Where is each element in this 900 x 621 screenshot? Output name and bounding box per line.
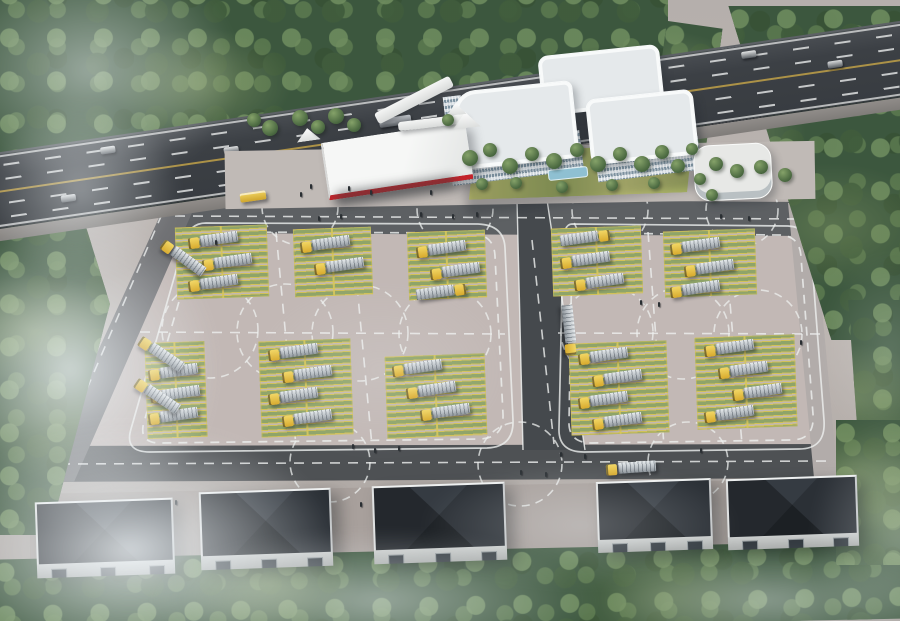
tree bbox=[510, 177, 522, 189]
truck-cab bbox=[684, 265, 696, 277]
tree bbox=[556, 181, 568, 193]
tree bbox=[778, 168, 792, 182]
tree bbox=[311, 120, 325, 134]
truck-cab bbox=[718, 367, 730, 379]
truck-cab bbox=[282, 415, 294, 427]
truck-cab bbox=[148, 413, 160, 425]
tree bbox=[606, 179, 618, 191]
warehouse-door bbox=[833, 537, 849, 547]
tree bbox=[462, 150, 478, 166]
pedestrian bbox=[374, 448, 376, 453]
building-roof-slab-2 bbox=[585, 89, 699, 166]
tree bbox=[613, 147, 627, 161]
tree bbox=[655, 145, 669, 159]
truck-cab bbox=[454, 284, 466, 296]
tree bbox=[694, 173, 706, 185]
warehouse-door bbox=[215, 560, 231, 570]
tree bbox=[706, 189, 718, 201]
warehouse-roof bbox=[372, 482, 507, 551]
pedestrian bbox=[452, 214, 454, 219]
warehouse-door bbox=[742, 540, 758, 550]
pedestrian bbox=[318, 216, 320, 221]
truck-cab bbox=[268, 349, 280, 361]
tree bbox=[292, 110, 308, 126]
truck-cab bbox=[704, 345, 716, 357]
pedestrian bbox=[560, 452, 562, 457]
truck-cab bbox=[268, 393, 280, 405]
pedestrian bbox=[520, 470, 522, 475]
tree bbox=[590, 156, 606, 172]
pedestrian bbox=[720, 214, 722, 219]
warehouse-door bbox=[787, 539, 803, 549]
truck-cab bbox=[670, 243, 682, 255]
pedestrian bbox=[476, 212, 478, 217]
warehouse-1 bbox=[199, 488, 334, 571]
truck-cab bbox=[578, 397, 590, 409]
truck-cab bbox=[598, 230, 610, 242]
truck-cab bbox=[148, 369, 160, 381]
pedestrian bbox=[215, 240, 217, 245]
pedestrian bbox=[360, 502, 362, 507]
pedestrian bbox=[310, 184, 312, 189]
warehouse-door bbox=[388, 554, 404, 564]
truck-cab bbox=[606, 464, 618, 476]
tree bbox=[502, 158, 518, 174]
tree bbox=[730, 164, 744, 178]
pedestrian bbox=[370, 190, 372, 195]
pedestrian bbox=[398, 446, 400, 451]
truck-cab bbox=[406, 387, 418, 399]
warehouse-door bbox=[261, 559, 277, 569]
warehouse-door bbox=[307, 557, 323, 567]
warehouse-door bbox=[649, 542, 665, 552]
warehouse-door bbox=[481, 551, 497, 561]
tree bbox=[483, 143, 497, 157]
tree bbox=[525, 147, 539, 161]
truck-cab bbox=[282, 371, 294, 383]
pedestrian bbox=[175, 500, 177, 505]
pedestrian bbox=[545, 472, 547, 477]
tree bbox=[442, 114, 454, 126]
tree bbox=[546, 153, 562, 169]
truck-cab bbox=[430, 268, 442, 280]
tree bbox=[328, 108, 344, 124]
pedestrian bbox=[658, 302, 660, 307]
aerial-rendering-truck-depot bbox=[0, 0, 900, 621]
warehouse-door bbox=[612, 543, 628, 553]
tree bbox=[709, 157, 723, 171]
truck-cab bbox=[300, 241, 312, 253]
tree bbox=[671, 159, 685, 173]
truck-cab bbox=[188, 237, 200, 249]
tree bbox=[347, 118, 361, 132]
pedestrian bbox=[748, 216, 750, 221]
truck-cab bbox=[416, 246, 428, 258]
truck-cab bbox=[392, 365, 404, 377]
truck-cab bbox=[704, 411, 716, 423]
pedestrian bbox=[584, 454, 586, 459]
pedestrian bbox=[420, 212, 422, 217]
pedestrian bbox=[300, 192, 302, 197]
truck-cab bbox=[592, 418, 604, 430]
warehouse-3 bbox=[596, 478, 713, 553]
tree bbox=[476, 178, 488, 190]
tree bbox=[570, 143, 584, 157]
tree bbox=[634, 156, 650, 172]
tree bbox=[686, 143, 698, 155]
tree bbox=[247, 113, 261, 127]
pedestrian bbox=[800, 340, 802, 345]
truck-cab bbox=[574, 279, 586, 291]
truck-cab bbox=[314, 263, 326, 275]
pedestrian bbox=[640, 300, 642, 305]
warehouse-roof bbox=[726, 475, 859, 538]
pedestrian bbox=[700, 448, 702, 453]
warehouse-door bbox=[100, 567, 116, 577]
pedestrian bbox=[352, 444, 354, 449]
truck-trailer bbox=[618, 460, 657, 474]
warehouse-roof bbox=[596, 478, 713, 540]
warehouse-2 bbox=[372, 482, 508, 565]
truck-cab bbox=[188, 280, 200, 292]
warehouse-4 bbox=[726, 475, 859, 551]
warehouse-door bbox=[149, 565, 165, 575]
pedestrian bbox=[340, 214, 342, 219]
tree bbox=[754, 160, 768, 174]
truck-cab bbox=[564, 343, 576, 355]
warehouse-door bbox=[51, 568, 67, 578]
truck-cab bbox=[420, 409, 432, 421]
truck-cab bbox=[560, 257, 572, 269]
warehouse-roof bbox=[35, 498, 175, 565]
warehouse-door bbox=[435, 553, 451, 563]
warehouse-door bbox=[687, 540, 703, 550]
truck-cab bbox=[592, 375, 604, 387]
pedestrian bbox=[348, 186, 350, 191]
tree bbox=[262, 120, 278, 136]
truck-cab bbox=[670, 286, 682, 298]
truck-cab bbox=[578, 353, 590, 365]
truck-cab bbox=[732, 389, 744, 401]
pedestrian bbox=[430, 190, 432, 195]
warehouse-roof bbox=[199, 488, 333, 557]
tree bbox=[648, 177, 660, 189]
warehouse-0 bbox=[35, 498, 176, 579]
